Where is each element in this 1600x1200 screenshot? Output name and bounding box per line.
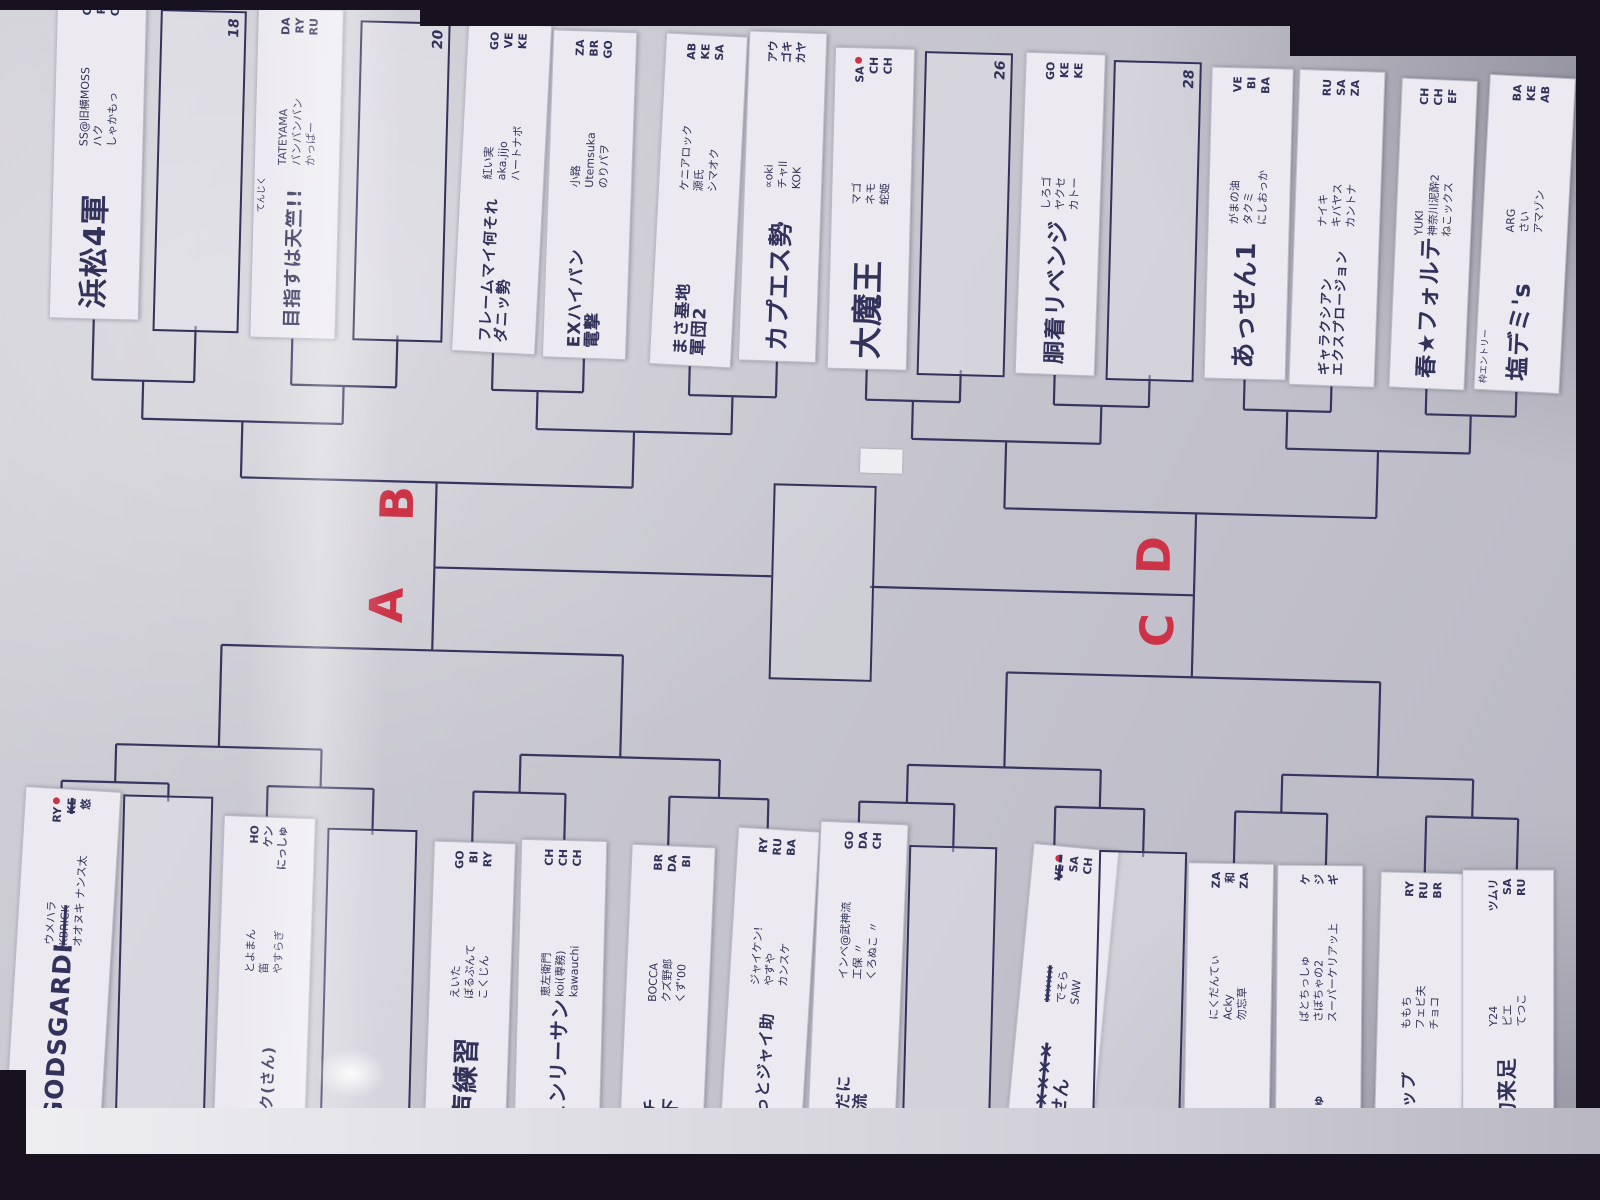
player-character-initial: VE [1232, 76, 1245, 92]
player-name: にくだんてぃ [1208, 954, 1221, 1019]
slot-number: 18 [226, 18, 242, 40]
player-name: でそら [1055, 970, 1070, 1004]
player-name: マゴ [851, 182, 864, 204]
player-character-initial: SA [1502, 879, 1514, 895]
player-row: さぼちゃの2ジ [1313, 874, 1326, 1022]
player-name: ウメハラ [44, 901, 59, 946]
player-name: やすらぎ [272, 930, 286, 974]
player-character-initial: GO [602, 40, 615, 59]
tape-piece [860, 449, 903, 474]
block-label-b: B [366, 473, 428, 535]
player-character-initial: VE [503, 32, 516, 49]
player-list: ウメハラRY●KBRICKKEオオヌキ ナンス太悠 [44, 797, 93, 947]
board-bottom-frame [0, 1108, 1600, 1156]
photo-edge-bottom-left [0, 1070, 26, 1200]
slot-number: 20 [430, 29, 446, 51]
player-row: ピエSA [1502, 879, 1514, 1027]
player-character-initial: SA [1068, 855, 1082, 873]
player-list: ∝okiアウチャllゴキKOKカヤ [763, 40, 808, 189]
player-character-initial: 悠 [80, 798, 93, 810]
empty-slot: 26 [917, 51, 1013, 377]
empty-slot: 2 [115, 794, 214, 1126]
player-row: マゴSA● [851, 56, 867, 204]
player-row: のりパヲGO [598, 40, 615, 188]
player-list: ケニアロックAB源氏KEシマオクSA [679, 43, 727, 193]
player-list: ××××VE●でそらSASAWCH [1041, 854, 1095, 1005]
player-character-initial: CH [872, 832, 885, 850]
player-character-initial: BA [1260, 77, 1273, 94]
team-name: 浜松4軍 [78, 146, 113, 309]
player-row: TATEYAMADA [277, 17, 293, 165]
red-dot-mark: ● [1054, 854, 1065, 863]
player-name: koi(専務) [554, 950, 567, 997]
player-character-initial: KE [1526, 85, 1539, 102]
player-character-initial: RU [771, 838, 784, 856]
player-name: とよまん [244, 929, 258, 973]
player-row: タクミBI [1243, 77, 1259, 225]
player-name: aka.jijo [496, 141, 510, 181]
player-name: ケニアロック [679, 124, 695, 191]
player-character-initial: SA [1336, 79, 1349, 96]
team-card: まさ基地軍団2ケニアロックAB源氏KEシマオクSA [649, 32, 748, 368]
team-card: 大魔王マゴSA●ネモCH蛇姫CH [827, 47, 915, 371]
player-character-initial: CH [543, 848, 556, 866]
player-row: 恵左衛門CH [540, 848, 556, 996]
player-name: ×××× [1041, 965, 1057, 1003]
player-name: かっぱー [305, 122, 318, 166]
player-character-initial: RU [308, 18, 321, 36]
team-card: ギャラクシアンエクスプロージョンナイキRUキバヤスSAカントナZA [1288, 69, 1385, 388]
team-name: フレームマイ何それダニッ勢 [478, 179, 518, 342]
player-name: SAW [1069, 979, 1083, 1005]
player-character-initial: CH [868, 57, 881, 75]
player-character-initial: GO [489, 31, 502, 50]
player-character-initial: EF [1447, 89, 1460, 105]
player-name: 小路 [570, 165, 583, 187]
player-character-initial: RU [1418, 881, 1431, 899]
player-list: TATEYAMADAバンバンバンRYかっぱーRU [277, 17, 321, 166]
player-row: ぱとちっしゅケ [1299, 874, 1312, 1022]
red-dot-mark: ● [51, 797, 61, 805]
player-name: kawauchi [568, 945, 581, 997]
player-character-initial: アウ [767, 40, 780, 62]
player-name: さい [1519, 211, 1532, 234]
player-row: 勿忘草ZA [1236, 872, 1251, 1020]
empty-slot: 12 [1091, 850, 1187, 1152]
team-name: まさ基地軍団2 [673, 190, 717, 356]
player-character-initial: KE [700, 43, 713, 60]
photo-edge-bottom [0, 1154, 1600, 1200]
player-character-initial: ギ [1328, 874, 1340, 885]
player-name: Utemsuka [584, 132, 598, 188]
bracket-area: B A D C 浜松4軍SS@旧横MOSSCHハクRYしゃかもっCH18目指すは… [0, 0, 1600, 1200]
photo-edge-top-left [0, 0, 430, 10]
team-name: GODSGARDEN [40, 945, 77, 1122]
player-character-initial: ゴキ [781, 41, 794, 63]
player-row: にしおっかBA [1257, 77, 1273, 225]
team-card: フレームマイ何それダニッ勢紅い実GOaka.jijoVEハートナポKE [451, 21, 552, 355]
photo-edge-right [1576, 0, 1600, 1200]
empty-slot: 10 [901, 845, 997, 1147]
team-card: あっせん1がまの油VEタクミBIにしおっかBA [1204, 67, 1294, 381]
player-character-initial: SA● [854, 56, 867, 83]
player-row: こくじんRY [478, 851, 495, 999]
player-character-initial: HO [249, 825, 262, 844]
player-list: ジャイケン!RYやずやRUカンスケBA [749, 837, 798, 987]
player-character-initial: BI [468, 851, 481, 864]
player-list: とよまんHO笛ケンやすらぎにっしゅ [244, 825, 289, 974]
player-row: ネモCH [865, 57, 881, 205]
team-card: カプエス勢∝okiアウチャllゴキKOKカヤ [738, 31, 827, 364]
team-name: あっせん1 [1231, 224, 1262, 369]
player-list: SS@旧横MOSSCHハクRYしゃかもっCH [78, 0, 122, 147]
player-row: しゃかもっCH [106, 0, 122, 147]
player-character-initial: AB [686, 43, 699, 61]
player-character-initial: RY● [51, 797, 65, 823]
player-name: のりパヲ [598, 144, 612, 188]
player-character-initial: にっしゅ [276, 826, 290, 870]
player-name: こくじん [478, 955, 492, 999]
player-row: Y24ツムリ [1488, 879, 1500, 1027]
player-name: 源氏 [693, 169, 706, 192]
player-character-initial: ケ [1300, 874, 1312, 885]
player-character-initial: VE● [1053, 854, 1068, 881]
player-row: SS@旧横MOSSCH [78, 0, 94, 146]
player-row: かっぱーRU [305, 18, 321, 166]
player-name: スーパーケリアッ上 [1327, 923, 1340, 1022]
player-name: SS@旧横MOSS [78, 67, 92, 146]
tournament-board: B A D C 浜松4軍SS@旧横MOSSCHハクRYしゃかもっCH18目指すは… [0, 0, 1600, 1200]
player-list: ももちRYフェビ夫RUチョコBR [1400, 881, 1444, 1030]
player-character-initial: GO [843, 831, 856, 850]
player-character-initial: KE [1073, 62, 1086, 78]
player-character-initial: KE [1059, 62, 1072, 78]
player-name: インベ@武神流 [838, 902, 853, 979]
player-character-initial: RY [1404, 881, 1417, 897]
empty-slot: 28 [1106, 60, 1202, 382]
player-row: KOKカヤ [791, 41, 808, 189]
team-card: 春★フォルテYUKICH神奈川泥酔2CHねこックスEF [1388, 78, 1477, 391]
player-row: がまの油VE [1229, 76, 1245, 224]
player-name: しゃかもっ [106, 92, 120, 147]
player-character-initial: ケン [263, 825, 276, 847]
player-name: チャll [777, 161, 790, 189]
player-character-initial: ZA [574, 39, 587, 56]
team-name: EXハイパン電撃 [567, 187, 608, 348]
player-character-initial: SA [714, 44, 727, 61]
player-name: アマゾン [1533, 190, 1547, 235]
player-row: にくだんてぃZA [1208, 872, 1223, 1020]
player-name: 工保 〃 [852, 943, 866, 980]
team-name: カプエス勢 [764, 188, 796, 351]
player-name: 蛇姫 [879, 183, 892, 205]
player-character-initial: BR [1432, 882, 1445, 899]
player-row: スーパーケリアッ上ギ [1327, 874, 1340, 1022]
team-name: ギャラクシアンエクスプロージョン [1318, 227, 1350, 376]
player-character-initial: KE [517, 33, 530, 50]
player-name: チョコ [1429, 997, 1442, 1030]
player-name: にしおっか [1257, 170, 1271, 225]
player-name: 勿忘草 [1236, 987, 1249, 1020]
player-list: BOCCABRクズ野郎DAくず'00BI [647, 854, 694, 1004]
player-name: クズ野郎 [661, 958, 675, 1002]
player-list: えいたGOぽるぷんてBIこくじんRY [449, 850, 494, 999]
team-name: 塩デミ's [1504, 232, 1537, 381]
player-character-initial: RY [294, 18, 307, 34]
player-character-initial: DA [667, 854, 680, 872]
player-row: koi(専務)CH [554, 849, 570, 997]
player-character-initial: CH [558, 849, 571, 867]
player-character-initial: DA [857, 831, 870, 849]
player-name: ぱとちっしゅ [1299, 956, 1312, 1022]
player-row: ハクRY [92, 0, 108, 147]
player-character-initial: RU [1516, 879, 1528, 896]
team-card: 憑いだに武神流インベ@武神流GO工保 〃DAくろぬこ 〃CH [806, 821, 908, 1157]
player-character-initial: DA [280, 17, 293, 35]
team-name: 目指すは天竺!! [283, 165, 307, 327]
player-list: Y24ツムリピエSAてつこRU [1488, 879, 1528, 1027]
player-character-initial: BR [653, 854, 666, 871]
player-name: カトー [1068, 177, 1081, 210]
player-list: 小路ZAUtemsukaBRのりパヲGO [570, 39, 615, 188]
player-name: シマオク [707, 148, 721, 192]
player-character-initial: ZA [1350, 80, 1363, 97]
player-character-initial: ツムリ [1488, 879, 1500, 912]
player-row: やすらぎにっしゅ [272, 826, 289, 974]
player-character-initial: CH [882, 57, 895, 75]
player-name: 紅い実 [482, 146, 496, 180]
team-name: 春★フォルテ [1415, 236, 1445, 379]
player-character-initial: ジ [1314, 874, 1326, 885]
player-row: フェビ夫RU [1415, 881, 1431, 1029]
player-name: ジャイケン! [749, 926, 765, 985]
player-character-initial: カヤ [795, 41, 808, 63]
furigana-note: てんじく [254, 176, 268, 212]
player-list: マゴSA●ネモCH蛇姫CH [851, 56, 895, 205]
player-name: Acky [1222, 994, 1235, 1020]
player-name: てつこ [1516, 994, 1528, 1027]
team-name: 胴着リベンジ [1043, 210, 1072, 365]
player-character-initial: 和 [1225, 872, 1237, 883]
player-character-initial: CH [1082, 857, 1096, 875]
player-name: カンスケ [778, 943, 793, 987]
player-name: Y24 [1488, 1006, 1500, 1027]
team-name: 大魔王 [850, 204, 887, 359]
player-name: ももち [1400, 996, 1413, 1029]
empty-slot: 18 [152, 9, 246, 333]
player-list: YUKICH神奈川泥酔2CHねこックスEF [1413, 87, 1460, 237]
player-character-initial: KE [66, 798, 79, 815]
player-name: フェビ夫 [1415, 985, 1428, 1029]
player-character-initial: RY [758, 837, 771, 854]
photo-edge-top-right [1290, 0, 1600, 56]
player-name: TATEYAMA [277, 109, 291, 166]
team-card: 塩デミ'sARGBAさいKEアマゾンAB枠エントリー [1473, 74, 1575, 394]
team-card: 目指すは天竺!!TATEYAMADAバンバンバンRYかっぱーRUてんじく [249, 8, 344, 340]
player-name: ハートナポ [510, 126, 525, 182]
player-name: ナイキ [1317, 194, 1330, 227]
player-character-initial: CH [1433, 88, 1446, 106]
red-dot-mark: ● [854, 56, 864, 64]
player-character-initial: BA [786, 839, 799, 857]
player-row: カントナZA [1345, 80, 1362, 228]
player-character-initial: CH [1419, 87, 1432, 105]
player-list: 紅い実GOaka.jijoVEハートナポKE [482, 31, 530, 181]
player-row: バンバンバンRY [291, 18, 307, 166]
player-name: ヤクセ [1054, 177, 1067, 210]
team-card: 浜松4軍SS@旧横MOSSCHハクRYしゃかもっCH [49, 0, 148, 321]
player-row: てつこRU [1516, 879, 1528, 1027]
player-row: カトーKE [1068, 62, 1085, 210]
player-list: にくだんてぃZAAcky和勿忘草ZA [1208, 872, 1251, 1021]
slot-number: 28 [1181, 69, 1197, 91]
photo-edge-top [420, 0, 1300, 26]
player-name: くろぬこ 〃 [866, 921, 881, 980]
player-row: Acky和 [1222, 872, 1237, 1020]
player-name: ∝oki [763, 164, 776, 188]
player-row: ももちRY [1400, 881, 1416, 1029]
slot-number: 26 [992, 60, 1008, 82]
player-row: kawauchiCH [568, 849, 584, 997]
block-label-a: A [356, 574, 418, 636]
team-card: EXハイパン電撃小路ZAUtemsukaBRのりパヲGO [542, 29, 637, 360]
final-box [769, 483, 877, 682]
player-character-initial: GO [1045, 61, 1058, 80]
player-list: ナイキRUキバヤスSAカントナZA [1317, 79, 1362, 228]
player-list: ARGBAさいKEアマゾンAB [1505, 84, 1553, 234]
player-character-initial: BI [681, 855, 694, 868]
player-list: しろゴGOヤクセKEカトーKE [1040, 61, 1085, 210]
empty-slot: 4 [320, 828, 418, 1132]
player-name: がまの油 [1229, 180, 1242, 224]
player-character-initial: BA [1511, 84, 1524, 102]
team-card: 胴着リベンジしろゴGOヤクセKEカトーKE [1015, 52, 1106, 377]
player-row: チョコBR [1429, 882, 1445, 1030]
player-name: ハク [92, 124, 105, 146]
player-character-initial: ZA [1239, 872, 1251, 889]
player-name: 恵左衛門 [540, 952, 553, 996]
whiteboard-photo: B A D C 浜松4軍SS@旧横MOSSCHハクRYしゃかもっCH18目指すは… [0, 0, 1600, 1200]
player-name: KOK [791, 167, 804, 190]
player-name: しろゴ [1040, 176, 1053, 209]
player-name: くず'00 [675, 964, 689, 1004]
player-name: カントナ [1345, 184, 1359, 228]
player-name: 神奈川泥酔2 [1427, 174, 1442, 236]
player-list: がまの油VEタクミBIにしおっかBA [1229, 76, 1273, 225]
player-name: タクミ [1243, 191, 1256, 224]
player-name: さぼちゃの2 [1313, 960, 1326, 1022]
player-name: 笛 [258, 962, 270, 973]
player-name: YUKI [1413, 210, 1426, 236]
player-name: BOCCA [647, 963, 661, 1002]
player-name: えいた [449, 965, 462, 998]
block-label-d: D [1123, 524, 1185, 586]
player-character-initial: BR [588, 40, 601, 57]
block-label-c: C [1126, 600, 1188, 662]
player-name: KBRICK [58, 905, 73, 946]
player-name: ネモ [865, 183, 878, 205]
player-row: 蛇姫CH [879, 57, 895, 205]
player-list: インベ@武神流GO工保 〃DAくろぬこ 〃CH [838, 831, 885, 981]
player-name: やずや [764, 953, 778, 987]
empty-slot: 20 [352, 20, 450, 342]
player-character-initial: RY [482, 851, 495, 867]
player-name: キバヤス [1331, 183, 1345, 227]
player-name: ぽるぷんて [463, 944, 477, 999]
player-character-initial: RU [1321, 79, 1334, 97]
player-character-initial: GO [454, 850, 467, 869]
player-character-initial: ZA [1211, 872, 1223, 889]
player-name: ARG [1505, 208, 1518, 232]
player-character-initial: AB [1540, 86, 1553, 104]
player-name: ピエ [1502, 1005, 1514, 1027]
player-list: ぱとちっしゅケさぼちゃの2ジスーパーケリアッ上ギ [1299, 874, 1341, 1022]
player-name: ねこックス [1441, 182, 1455, 237]
player-list: 恵左衛門CHkoi(専務)CHkawauchiCH [540, 848, 584, 997]
player-character-initial: CH [572, 849, 585, 867]
player-character-initial: BI [1246, 77, 1258, 90]
player-name: バンバンバン [291, 98, 305, 166]
